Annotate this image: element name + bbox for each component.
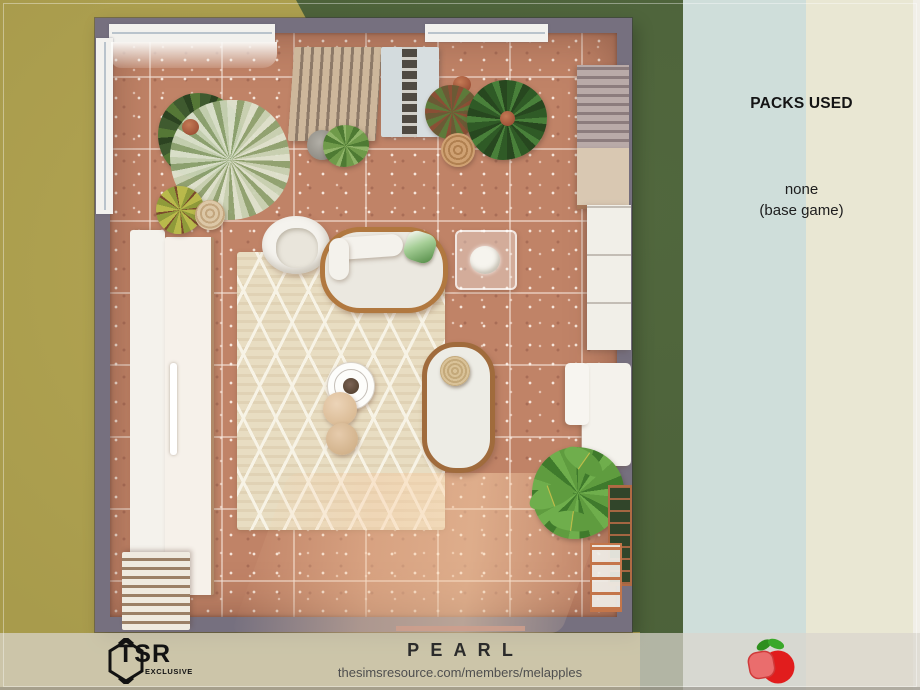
rattan-basket [441, 133, 475, 167]
oval-rattan-sofa [320, 227, 448, 313]
floor-pouf [323, 392, 357, 426]
cabinet-shelf-column [402, 47, 417, 137]
melapples-apple-icon [735, 635, 805, 687]
screenshot-root: PACKS USED none (base game) TSR EXCLUSIV… [0, 0, 920, 690]
packs-used-panel: PACKS USED none (base game) [683, 0, 920, 632]
white-sofa-right-arm [565, 363, 589, 425]
slatted-lounger-bottom-left [122, 552, 190, 630]
packs-basegame-text: (base game) [683, 200, 920, 221]
tray-vase [343, 378, 359, 394]
tan-sideboard-right [577, 148, 629, 209]
footer-bar: TSR EXCLUSIVE PEARL thesimsresource.com/… [0, 633, 920, 690]
window-glass [112, 32, 272, 34]
white-storage-unit-right [587, 205, 631, 350]
window-top-left [109, 24, 275, 42]
window-top-right [425, 24, 548, 42]
packs-none-text: none [683, 179, 920, 200]
table-plate [470, 246, 500, 274]
slatted-bench-right [577, 65, 629, 148]
ladder-shelf [590, 543, 622, 612]
palm-print-pillow [401, 228, 439, 266]
white-curtain [111, 42, 277, 68]
window-glass [104, 42, 106, 210]
sofa-armrest [329, 238, 349, 280]
window-glass [428, 32, 545, 34]
rattan-ball [195, 200, 225, 230]
planter-leaves [323, 125, 369, 167]
palm-plant-top-right [467, 80, 547, 160]
window-left-wall [96, 38, 113, 214]
palm-pot [500, 111, 515, 126]
packs-used-note: none (base game) [683, 179, 920, 221]
terracotta-pot [182, 119, 199, 135]
floor-pouf [326, 423, 358, 455]
left-console-back [130, 230, 165, 575]
chair-cushion [276, 228, 318, 268]
sunlit-wall-edge [396, 626, 525, 631]
console-tray [170, 363, 177, 455]
oval-chaise [422, 342, 495, 473]
rattan-pillow [440, 356, 470, 386]
glass-side-table [455, 230, 517, 290]
room-top-down-view [95, 18, 632, 632]
packs-used-heading: PACKS USED [683, 95, 920, 113]
terracotta-tile-floor [110, 33, 617, 617]
